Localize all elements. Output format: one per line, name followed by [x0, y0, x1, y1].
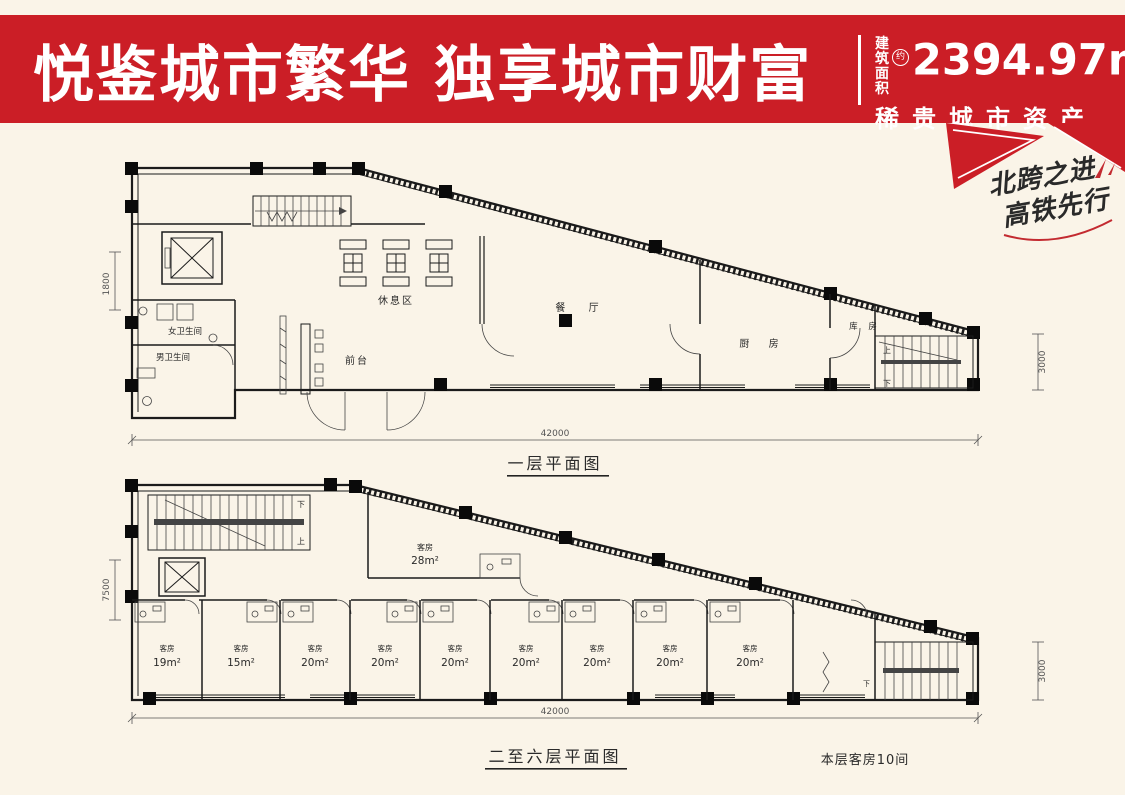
stair-down-label: 下 — [863, 680, 870, 688]
svg-text:客房: 客房 — [234, 643, 249, 653]
room-6: 客房20m² — [512, 643, 540, 669]
entrance-doors — [307, 392, 425, 430]
svg-text:20m²: 20m² — [512, 657, 540, 669]
svg-text:客房: 客房 — [378, 643, 393, 653]
dim-42000: 42000 — [541, 429, 570, 439]
dim-right-value: 3000 — [1038, 659, 1048, 682]
facade-hatch — [361, 172, 975, 335]
floor-plan-2: 下 上 客房 28m² — [95, 470, 1055, 795]
room-28: 客房 28m² — [368, 492, 538, 596]
room-7: 客房20m² — [583, 643, 611, 669]
svg-text:20m²: 20m² — [371, 657, 399, 669]
stairs-topleft: 下 上 — [148, 495, 310, 550]
dimension-left: 1800 — [102, 252, 121, 310]
toilet-block: 女卫生间 男卫生间 — [132, 300, 235, 406]
svg-text:20m²: 20m² — [301, 657, 329, 669]
stairs-topleft — [253, 196, 351, 226]
storage-label: 库 房 — [849, 321, 881, 332]
stair-down-label: 下 — [297, 500, 305, 509]
dim-left-value: 7500 — [102, 578, 112, 601]
svg-text:客房: 客房 — [448, 643, 463, 653]
svg-text:客房: 客房 — [743, 643, 758, 653]
stair-up-label: 上 — [297, 537, 305, 546]
svg-text:客房: 客房 — [308, 643, 323, 653]
dimension-bottom: 42000 — [128, 707, 982, 724]
approx-badge: 约 — [892, 49, 909, 66]
corridor-wall — [132, 600, 794, 614]
dining-label: 餐 厅 — [555, 301, 608, 314]
rest-area-label: 休息区 — [378, 294, 414, 307]
facade-hatch — [358, 489, 975, 641]
room-label: 客房 — [417, 542, 433, 552]
corridor-walls — [132, 212, 425, 224]
stair-up-label: 上 — [883, 346, 891, 355]
svg-text:客房: 客房 — [160, 643, 175, 653]
room-8: 客房20m² — [656, 643, 684, 669]
header-right-block: 建筑 面积 约 2394.97m2 稀贵城市资产 — [875, 27, 1123, 134]
svg-text:客房: 客房 — [590, 643, 605, 653]
room-count-note: 本层客房10间 — [821, 752, 910, 768]
building-outline — [132, 485, 978, 700]
guest-rooms: 客房19m² 客房15m² 客房20m² 客房20m² 客房20m² 客房20m… — [153, 643, 764, 669]
men-wc-label: 男卫生间 — [156, 352, 190, 363]
dim-right-value: 3000 — [1038, 350, 1048, 373]
window-band — [490, 385, 870, 388]
area-value: 2394.97m2 — [912, 27, 1125, 86]
front-desk: 前台 — [280, 316, 369, 394]
room-5: 客房20m² — [441, 643, 469, 669]
svg-text:客房: 客房 — [663, 643, 678, 653]
dimension-bottom: 42000 — [128, 429, 982, 446]
svg-text:20m²: 20m² — [441, 657, 469, 669]
building-area-row: 建筑 面积 约 2394.97m2 — [875, 27, 1123, 97]
room-3: 客房20m² — [301, 643, 329, 669]
poster-title: 悦鉴城市繁华 独享城市财富 — [33, 25, 812, 114]
structural-columns — [125, 478, 979, 705]
header-band: 悦鉴城市繁华 独享城市财富 建筑 面积 约 2394.97m2 稀贵城市资产 — [0, 15, 1125, 123]
room-area: 28m² — [411, 555, 439, 567]
stairs-right: 下 — [823, 600, 973, 700]
window-band — [155, 695, 865, 698]
building-outline — [132, 168, 978, 418]
room-2: 客房15m² — [227, 643, 255, 669]
header-divider — [858, 35, 861, 105]
svg-text:20m²: 20m² — [656, 657, 684, 669]
room-4: 客房20m² — [371, 643, 399, 669]
elevator — [159, 558, 205, 596]
svg-text:20m²: 20m² — [583, 657, 611, 669]
stair-down-label: 下 — [883, 379, 891, 388]
room-walls — [202, 600, 793, 700]
flourish-stroke-icon — [1095, 159, 1106, 178]
dimension-right: 3000 — [1032, 642, 1048, 700]
floor-plan-1: 女卫生间 男卫生间 前台 休息区 餐 厅 — [95, 148, 1055, 483]
area-label: 建筑 面积 — [875, 27, 890, 97]
room-1: 客房19m² — [153, 643, 181, 669]
kitchen-label: 厨 房 — [739, 337, 786, 350]
room-bathrooms — [135, 602, 740, 622]
dining-room: 餐 厅 — [480, 236, 609, 356]
plan2-caption: 二至六层平面图 — [485, 747, 627, 770]
svg-text:二至六层平面图: 二至六层平面图 — [488, 747, 621, 766]
room-9: 客房20m² — [736, 643, 764, 669]
front-desk-label: 前台 — [345, 354, 369, 367]
dimension-left: 7500 — [102, 560, 121, 620]
women-wc-label: 女卫生间 — [168, 326, 202, 337]
dimension-right: 3000 — [1032, 334, 1048, 390]
dim-left-value: 1800 — [102, 272, 112, 295]
dim-42000: 42000 — [541, 707, 570, 717]
svg-text:15m²: 15m² — [227, 657, 255, 669]
svg-text:客房: 客房 — [519, 643, 534, 653]
svg-text:19m²: 19m² — [153, 657, 181, 669]
elevator — [162, 232, 222, 284]
svg-text:20m²: 20m² — [736, 657, 764, 669]
rest-area: 休息区 — [340, 240, 452, 307]
